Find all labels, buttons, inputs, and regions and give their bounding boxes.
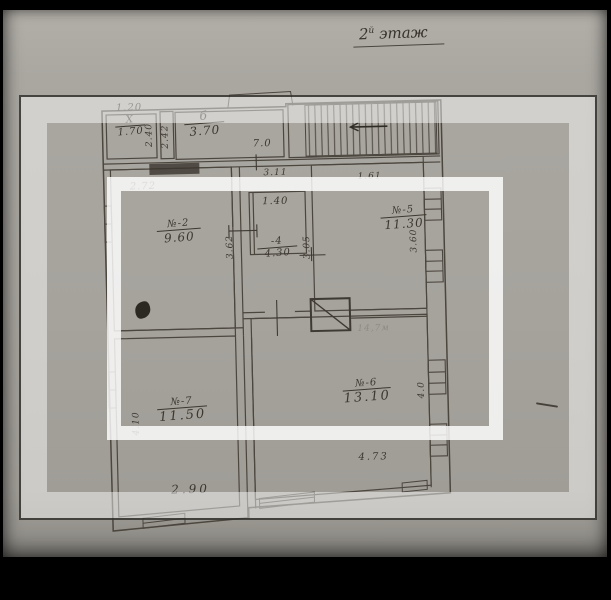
scanned-floorplan-photo: 2й этаж [3,10,607,557]
screenshot-stage: 2й этаж [0,0,611,600]
title-superscript: й [368,26,374,36]
inner-highlight-frame [107,177,503,440]
title-word: этаж [379,23,428,43]
page-title: 2й этаж [353,22,444,47]
